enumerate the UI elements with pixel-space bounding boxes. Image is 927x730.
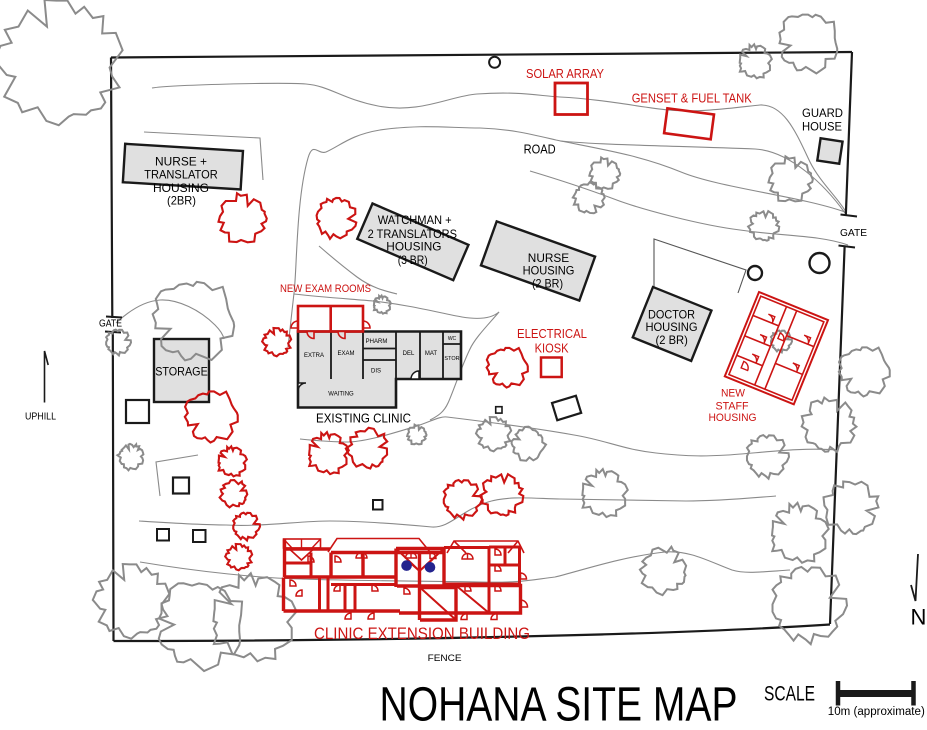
svg-text:UPHILL: UPHILL xyxy=(25,411,56,423)
svg-text:STORAGE: STORAGE xyxy=(155,365,208,379)
svg-text:EXTRA: EXTRA xyxy=(304,353,324,359)
svg-text:(3 BR): (3 BR) xyxy=(398,253,428,267)
svg-text:CLINIC EXTENSION BUILDING: CLINIC EXTENSION BUILDING xyxy=(314,625,530,643)
svg-text:(2BR): (2BR) xyxy=(167,194,196,208)
svg-text:NEW: NEW xyxy=(721,388,746,400)
svg-text:(2 BR): (2 BR) xyxy=(656,333,688,347)
svg-text:GATE: GATE xyxy=(99,319,122,330)
svg-text:MAT: MAT xyxy=(425,351,438,357)
svg-text:HOUSING: HOUSING xyxy=(709,412,757,424)
svg-text:KIOSK: KIOSK xyxy=(535,341,570,355)
svg-text:EXISTING CLINIC: EXISTING CLINIC xyxy=(316,412,411,426)
svg-text:TRANSLATOR: TRANSLATOR xyxy=(144,168,218,182)
svg-text:HOUSING: HOUSING xyxy=(386,240,441,254)
svg-text:WAITING: WAITING xyxy=(328,392,354,398)
svg-text:WC: WC xyxy=(448,336,457,342)
svg-text:N: N xyxy=(911,605,927,630)
svg-text:STAFF: STAFF xyxy=(716,401,749,413)
svg-text:WATCHMAN +: WATCHMAN + xyxy=(378,213,452,227)
svg-text:SCALE: SCALE xyxy=(764,682,815,706)
svg-text:GUARD: GUARD xyxy=(802,106,843,120)
svg-text:NOHANA SITE MAP: NOHANA SITE MAP xyxy=(380,678,738,730)
svg-text:ROAD: ROAD xyxy=(524,142,556,157)
svg-text:(2 BR): (2 BR) xyxy=(532,277,563,291)
svg-text:HOUSE: HOUSE xyxy=(802,120,842,134)
svg-text:FENCE: FENCE xyxy=(428,653,462,663)
svg-text:DEL: DEL xyxy=(403,351,415,357)
svg-text:GATE: GATE xyxy=(840,228,867,239)
svg-text:NURSE +: NURSE + xyxy=(155,155,207,169)
svg-text:STOR: STOR xyxy=(444,356,459,362)
svg-text:EXAM: EXAM xyxy=(337,351,354,357)
svg-text:NEW EXAM ROOMS: NEW EXAM ROOMS xyxy=(280,283,371,295)
svg-text:HOUSING: HOUSING xyxy=(645,320,697,334)
svg-text:ELECTRICAL: ELECTRICAL xyxy=(517,327,587,341)
svg-text:SOLAR ARRAY: SOLAR ARRAY xyxy=(526,66,604,81)
svg-text:PHARM: PHARM xyxy=(366,339,388,345)
svg-text:10m (approximate): 10m (approximate) xyxy=(828,706,925,718)
svg-text:GENSET & FUEL TANK: GENSET & FUEL TANK xyxy=(632,91,752,106)
svg-text:DIS: DIS xyxy=(371,369,381,375)
